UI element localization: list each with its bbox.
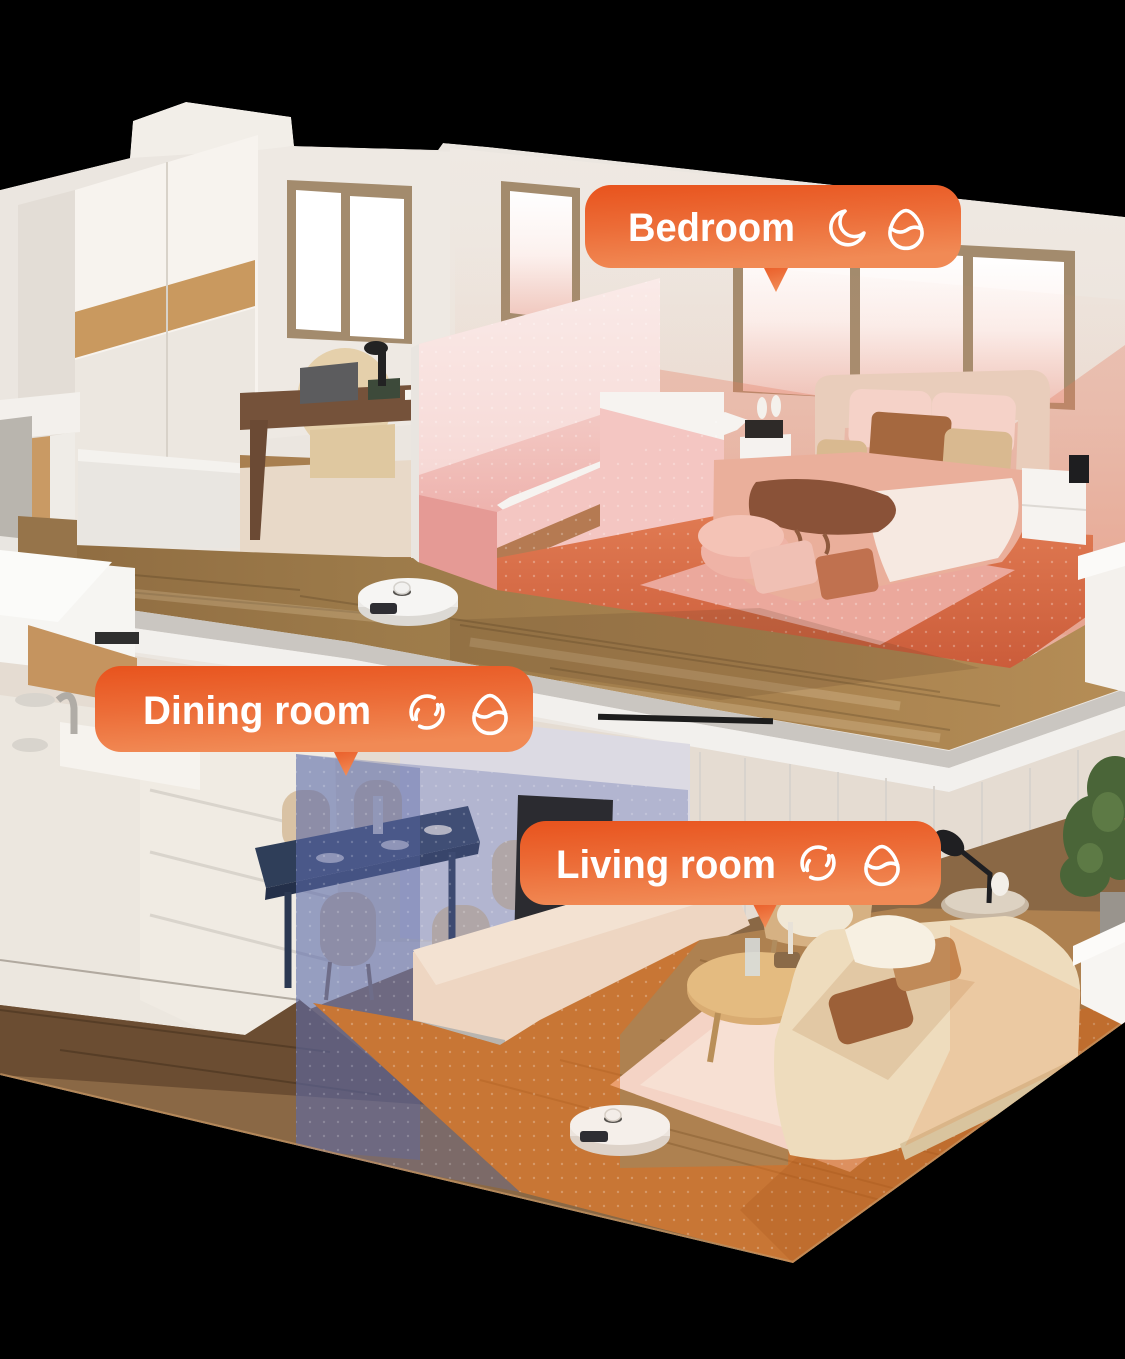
svg-text:Bedroom: Bedroom: [628, 206, 795, 250]
svg-text:Living room: Living room: [556, 843, 776, 887]
svg-text:Dining room: Dining room: [143, 689, 371, 733]
